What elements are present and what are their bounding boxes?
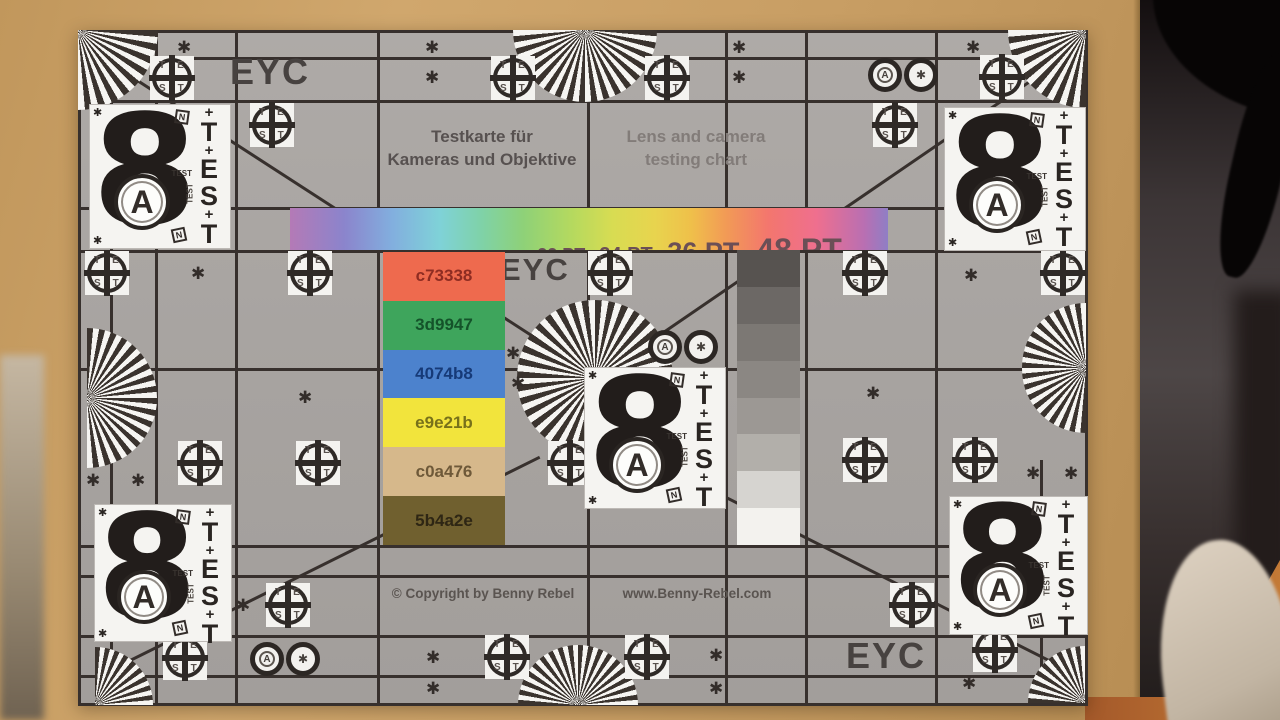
circled-a: A xyxy=(969,177,1025,233)
n-pattern: N xyxy=(1028,613,1045,630)
asterisk-mark: ✱ xyxy=(426,648,440,668)
asterisk-mark: ✱ xyxy=(506,344,520,364)
crosshair-letters: ST xyxy=(882,130,919,141)
circled-a: A xyxy=(114,174,170,230)
crosshair-letters: ST xyxy=(297,278,334,289)
color-swatch: 5b4a2e xyxy=(383,496,505,545)
crosshair-letters: TE xyxy=(962,442,999,453)
crosshair-bar xyxy=(624,654,670,660)
color-swatch: 3d9947 xyxy=(383,301,505,350)
asterisk-mark: ✱ xyxy=(732,68,746,88)
crosshair-letters: TE xyxy=(989,59,1026,70)
crosshair-letters: TE xyxy=(634,639,671,650)
crosshair-bar xyxy=(842,270,888,276)
gray-step xyxy=(737,324,800,361)
n-pattern: N xyxy=(172,620,189,637)
crosshair-target: TEST xyxy=(588,251,632,295)
crosshair-letters: TE xyxy=(882,107,919,118)
crosshair-letters: TE xyxy=(899,587,936,598)
color-swatch: c0a476 xyxy=(383,447,505,496)
mini-star: ✱ xyxy=(696,340,706,354)
crosshair-letters: ST xyxy=(259,130,296,141)
test-small-label: TEST xyxy=(1042,575,1051,595)
crosshair-bar xyxy=(162,655,208,661)
grid-line xyxy=(805,30,808,706)
crosshair-letters: TE xyxy=(597,255,634,266)
crosshair-letters: TE xyxy=(305,445,342,456)
asterisk-mark: ✱ xyxy=(511,374,525,394)
tiny-star: ✱ xyxy=(953,620,962,633)
pt-label: 36 PT xyxy=(667,237,739,250)
circled-a: A xyxy=(117,570,171,624)
couch-edge xyxy=(0,355,44,720)
test-small-label: TEST xyxy=(1029,561,1049,570)
test-small-label: TEST xyxy=(185,183,194,203)
crosshair-letters: ST xyxy=(597,278,634,289)
mini-star: ✱ xyxy=(298,652,308,666)
pt-separator: - xyxy=(528,248,533,250)
crosshair-letters: ST xyxy=(634,662,671,673)
gray-step xyxy=(737,250,800,287)
mini-circled-a: A xyxy=(259,651,275,667)
n-pattern: N xyxy=(1026,229,1043,246)
gray-step xyxy=(737,434,800,471)
resolution-target-8: 8 A +T+ES+T TEST TEST N N ✱ ✱ xyxy=(950,497,1087,634)
eyc-label: EYC xyxy=(846,638,926,674)
crosshair-bar xyxy=(287,270,333,276)
test-small-label: TEST xyxy=(667,432,687,441)
tiny-star: ✱ xyxy=(98,506,107,519)
test-small-label: TEST xyxy=(1040,186,1049,206)
asterisk-mark: ✱ xyxy=(964,266,978,286)
crosshair-letters: ST xyxy=(899,610,936,621)
crosshair-bar xyxy=(842,457,888,463)
tiny-star: ✱ xyxy=(948,109,957,122)
siemens-fan xyxy=(518,645,638,705)
crosshair-letters: TE xyxy=(654,60,691,71)
test-small-label: TEST xyxy=(186,583,195,603)
test-small-label: TEST xyxy=(173,569,193,578)
crosshair-target: TEST xyxy=(491,56,535,100)
gray-step xyxy=(737,287,800,324)
n-pattern: N xyxy=(669,372,685,388)
test-small-label: TEST xyxy=(1027,172,1047,181)
crosshair-letters: TE xyxy=(297,255,334,266)
crosshair-bar xyxy=(587,270,633,276)
crosshair-target: TEST xyxy=(178,441,222,485)
double-8-badge: A ✱ xyxy=(868,58,938,92)
crosshair-target: TEST xyxy=(625,635,669,679)
mini-star: ✱ xyxy=(916,68,926,82)
test-small-label: TEST xyxy=(680,446,689,466)
siemens-fan xyxy=(95,647,153,705)
asterisk-mark: ✱ xyxy=(191,264,205,284)
crosshair-bar xyxy=(952,457,998,463)
pt-separator: - xyxy=(476,249,480,250)
crosshair-target: TEST xyxy=(873,103,917,147)
crosshair-letters: ST xyxy=(494,662,531,673)
tiny-star: ✱ xyxy=(588,369,597,382)
circled-a: A xyxy=(973,563,1027,617)
gray-step xyxy=(737,398,800,435)
crosshair-bar xyxy=(177,460,223,466)
crosshair-letters: TE xyxy=(159,60,196,71)
asterisk-mark: ✱ xyxy=(1064,464,1078,484)
crosshair-bar xyxy=(84,270,130,276)
asterisk-mark: ✱ xyxy=(425,38,439,58)
crosshair-letters: ST xyxy=(1050,278,1087,289)
asterisk-mark: ✱ xyxy=(177,38,191,58)
badge-circle: ✱ xyxy=(286,642,320,676)
color-swatch-column: c73338 3d9947 4074b8 e9e21b c0a476 5b4a2… xyxy=(383,252,505,545)
crosshair-target: TEST xyxy=(843,438,887,482)
pt-separator: - xyxy=(657,244,664,250)
tiny-star: ✱ xyxy=(588,494,597,507)
gray-step xyxy=(737,471,800,508)
grid-line xyxy=(78,30,81,706)
crosshair-letters: TE xyxy=(187,445,224,456)
shadow xyxy=(1234,290,1280,580)
crosshair-letters: TE xyxy=(852,442,889,453)
crosshair-letters: ST xyxy=(94,278,131,289)
crosshair-target: TEST xyxy=(288,251,332,295)
n-pattern: N xyxy=(175,509,191,525)
color-swatch: e9e21b xyxy=(383,398,505,447)
crosshair-bar xyxy=(972,647,1018,653)
resolution-target-8: 8 A +T+ES+T TEST TEST N N ✱ ✱ xyxy=(945,108,1085,250)
crosshair-bar xyxy=(490,75,536,81)
crosshair-letters: TE xyxy=(500,60,537,71)
tiny-star: ✱ xyxy=(98,627,107,640)
crosshair-letters: ST xyxy=(187,468,224,479)
resolution-target-8-center: 8 A +T+ES+T TEST TEST N N ✱ ✱ xyxy=(585,368,725,508)
mini-circled-a: A xyxy=(877,67,893,83)
asterisk-mark: ✱ xyxy=(866,384,880,404)
copyright-text: © Copyright by Benny Rebel xyxy=(383,586,583,601)
crosshair-letters: ST xyxy=(172,663,209,674)
eyc-label: EYC xyxy=(500,254,570,285)
font-size-rainbow-bar: 8 PT - 10 PT - 12 PT - 14 PT - 16 PT - 1… xyxy=(290,208,888,250)
crosshair-letters: ST xyxy=(275,610,312,621)
photo-of-test-chart: { "scene": { "cardboard_css": "backgroun… xyxy=(0,0,1280,720)
pt-label: 48 PT xyxy=(756,232,841,250)
crosshair-target: TEST xyxy=(843,251,887,295)
crosshair-target: TEST xyxy=(645,56,689,100)
crosshair-bar xyxy=(1040,270,1086,276)
crosshair-letters: ST xyxy=(500,83,537,94)
tiny-star: ✱ xyxy=(953,498,962,511)
crosshair-bar xyxy=(149,75,195,81)
crosshair-bar xyxy=(249,122,295,128)
n-pattern: N xyxy=(1031,501,1047,517)
badge-circle: ✱ xyxy=(904,58,938,92)
double-8-badge: A ✱ xyxy=(250,642,320,676)
asterisk-mark: ✱ xyxy=(298,388,312,408)
pt-separator: - xyxy=(743,237,752,250)
color-swatch: c73338 xyxy=(383,252,505,301)
test-vertical-label: +T+ES+T xyxy=(192,108,226,245)
test-vertical-label: +T+ES+T xyxy=(1047,111,1081,247)
pt-label: 18 PT xyxy=(484,248,524,250)
test-vertical-label: +T+ES+T xyxy=(1049,500,1083,631)
crosshair-letters: TE xyxy=(1050,255,1087,266)
title-english: Lens and camera testing chart xyxy=(587,126,805,172)
crosshair-letters: TE xyxy=(259,107,296,118)
siemens-fan xyxy=(1022,303,1086,433)
crosshair-bar xyxy=(979,74,1025,80)
grayscale-step-wedge xyxy=(737,250,800,545)
crosshair-letters: ST xyxy=(654,83,691,94)
asterisk-mark: ✱ xyxy=(962,674,976,694)
badge-circle: A xyxy=(250,642,284,676)
test-chart-board: Testkarte für Kameras und Objektive Lens… xyxy=(78,30,1088,706)
tiny-star: ✱ xyxy=(93,234,102,247)
crosshair-bar xyxy=(265,602,311,608)
tiny-star: ✱ xyxy=(948,236,957,249)
crosshair-letters: ST xyxy=(852,278,889,289)
title-german: Testkarte für Kameras und Objektive xyxy=(377,126,587,172)
crosshair-bar xyxy=(484,654,530,660)
pt-label: 22 PT xyxy=(537,245,585,250)
resolution-target-8: 8 A +T+ES+T TEST TEST N N ✱ ✱ xyxy=(90,105,230,248)
asterisk-mark: ✱ xyxy=(236,596,250,616)
crosshair-letters: TE xyxy=(494,639,531,650)
pt-separator: - xyxy=(589,245,595,250)
pt-label: 16 PT xyxy=(437,249,472,250)
tiny-star: ✱ xyxy=(93,106,102,119)
gray-step xyxy=(737,508,800,545)
asterisk-mark: ✱ xyxy=(709,679,723,699)
crosshair-letters: ST xyxy=(982,655,1019,666)
crosshair-target: TEST xyxy=(296,441,340,485)
n-pattern: N xyxy=(171,227,188,244)
crosshair-bar xyxy=(872,122,918,128)
n-pattern: N xyxy=(1029,112,1045,128)
circled-a: A xyxy=(609,437,665,493)
asterisk-mark: ✱ xyxy=(732,38,746,58)
website-text: www.Benny-Rebel.com xyxy=(593,586,801,601)
crosshair-bar xyxy=(295,460,341,466)
eyc-label: EYC xyxy=(230,54,310,90)
crosshair-target: TEST xyxy=(250,103,294,147)
gray-step xyxy=(737,361,800,398)
crosshair-bar xyxy=(889,602,935,608)
crosshair-letters: TE xyxy=(852,255,889,266)
crosshair-target: TEST xyxy=(890,583,934,627)
resolution-target-8: 8 A +T+ES+T TEST TEST N N ✱ ✱ xyxy=(95,505,231,641)
siemens-fan xyxy=(87,328,157,468)
test-small-label: TEST xyxy=(172,169,192,178)
n-pattern: N xyxy=(174,109,190,125)
badge-circle: A xyxy=(868,58,902,92)
crosshair-target: TEST xyxy=(266,583,310,627)
asterisk-mark: ✱ xyxy=(966,38,980,58)
crosshair-bar xyxy=(644,75,690,81)
test-vertical-label: +T+ES+T xyxy=(193,508,227,638)
crosshair-letters: ST xyxy=(305,468,342,479)
asterisk-mark: ✱ xyxy=(709,646,723,666)
crosshair-letters: TE xyxy=(275,587,312,598)
test-vertical-label: +T+ES+T xyxy=(687,371,721,505)
crosshair-target: TEST xyxy=(485,635,529,679)
n-pattern: N xyxy=(666,487,683,504)
asterisk-mark: ✱ xyxy=(425,68,439,88)
color-swatch: 4074b8 xyxy=(383,350,505,399)
crosshair-letters: ST xyxy=(852,465,889,476)
asterisk-mark: ✱ xyxy=(426,679,440,699)
